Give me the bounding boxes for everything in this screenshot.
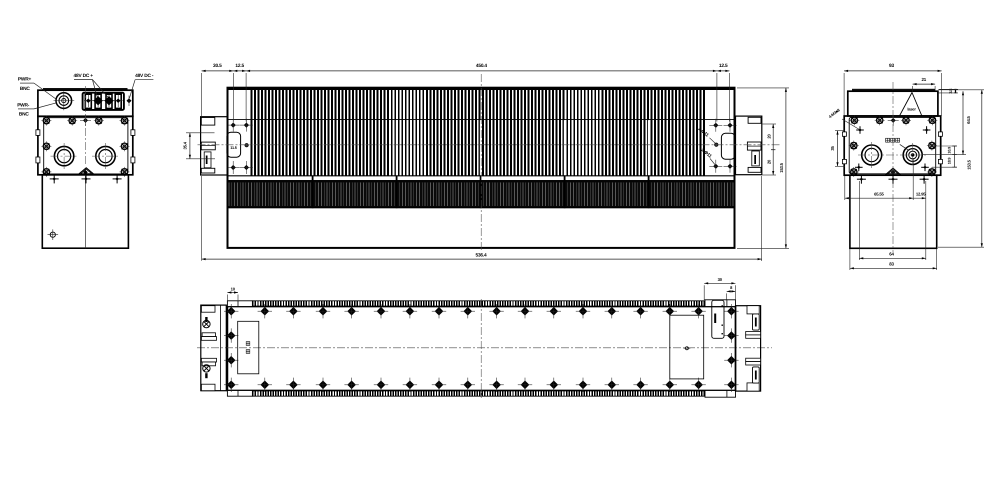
svg-text:93: 93 xyxy=(889,63,894,69)
svg-text:21: 21 xyxy=(922,77,927,82)
svg-text:64.5: 64.5 xyxy=(966,115,971,123)
svg-text:12.5: 12.5 xyxy=(235,63,244,69)
svg-text:PWR-: PWR- xyxy=(17,103,30,109)
svg-text:BNC: BNC xyxy=(20,86,31,92)
svg-text:450.4: 450.4 xyxy=(476,63,488,69)
svg-text:12.5: 12.5 xyxy=(719,63,728,69)
svg-text:153.5: 153.5 xyxy=(966,159,971,169)
svg-text:65.55: 65.55 xyxy=(874,192,884,197)
svg-text:48V DC -: 48V DC - xyxy=(135,73,154,79)
svg-text:536.4: 536.4 xyxy=(475,253,487,259)
svg-text:35.4: 35.4 xyxy=(183,141,188,149)
svg-text:PWR+: PWR+ xyxy=(18,76,32,82)
svg-text:30.5: 30.5 xyxy=(213,63,222,69)
svg-text:BNC: BNC xyxy=(19,111,30,117)
svg-text:18.9: 18.9 xyxy=(948,158,952,165)
svg-text:83: 83 xyxy=(889,262,894,267)
svg-text:10.9: 10.9 xyxy=(948,147,952,154)
svg-text:12.95: 12.95 xyxy=(916,192,926,197)
svg-text:laser: laser xyxy=(907,107,916,112)
svg-text:64: 64 xyxy=(889,252,894,257)
svg-text:11.5: 11.5 xyxy=(230,146,236,150)
svg-text:153.5: 153.5 xyxy=(779,162,784,172)
svg-text:48V DC +: 48V DC + xyxy=(74,73,94,79)
